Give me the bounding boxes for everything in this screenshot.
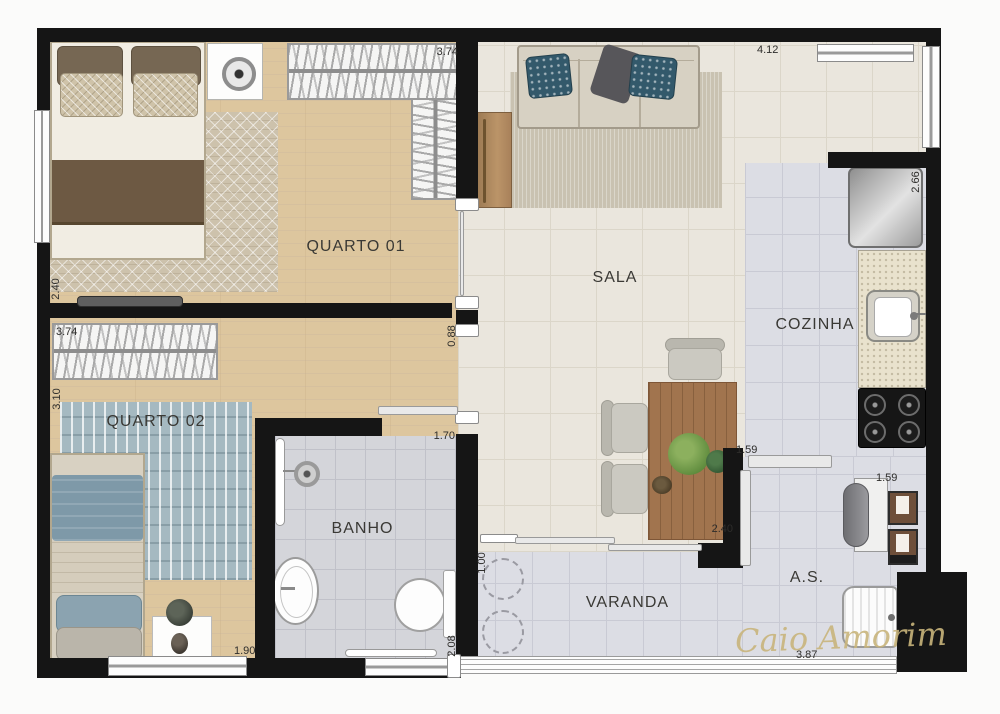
toilet xyxy=(394,578,446,632)
plant-icon xyxy=(668,433,710,475)
cabinet-door xyxy=(896,496,909,514)
blanket-blue xyxy=(52,475,143,541)
sofa-seat-divider xyxy=(578,59,580,127)
room-label-as: A.S. xyxy=(786,569,828,587)
sink-inner xyxy=(280,566,313,618)
window-banho-bottom xyxy=(365,658,458,676)
laundry-cabinet xyxy=(888,491,918,525)
dim-quarto02-bottom: 1.90 xyxy=(234,645,274,657)
as-passage-door xyxy=(748,455,832,468)
pattern-pillow xyxy=(60,73,123,117)
blanket-brown xyxy=(52,160,204,225)
window-quarto02-bottom xyxy=(108,656,247,676)
wall-quarto02-banho xyxy=(255,418,275,660)
as-door-leaf xyxy=(740,470,751,566)
door-jamb xyxy=(455,324,479,337)
room-label-quarto01: QUARTO 01 xyxy=(300,238,412,256)
shower-head-icon xyxy=(294,461,320,487)
dim-cozinha-bottom: 1.59 xyxy=(736,444,776,456)
room-label-quarto02: QUARTO 02 xyxy=(100,413,212,431)
faucet-icon xyxy=(281,587,295,590)
dim-dining-table: 2.40 xyxy=(697,523,733,535)
burner-icon xyxy=(864,394,886,416)
room-label-banho: BANHO xyxy=(325,520,400,538)
dim-banho-bottom-right: 2.08 xyxy=(446,624,458,668)
sideboard-groove xyxy=(483,119,486,203)
sideboard xyxy=(476,112,512,208)
sink-basin xyxy=(874,297,912,337)
chair xyxy=(611,464,648,514)
floor-drain-dashed-circle xyxy=(482,558,524,600)
window-sala-right xyxy=(922,46,940,148)
wall-top xyxy=(37,28,941,42)
washing-machine-drum xyxy=(843,483,869,547)
cabinet-door xyxy=(896,534,909,552)
dim-quarto01-top: 3.74 xyxy=(414,46,458,58)
room-label-sala: SALA xyxy=(580,269,650,287)
floor-drain-dashed-circle xyxy=(482,610,524,654)
wardrobe-quarto01-side xyxy=(411,98,461,200)
tv-panel xyxy=(77,296,183,307)
sofa-pillow-teal-left xyxy=(525,53,573,99)
dim-quarto02-closet: 3.74 xyxy=(56,326,100,338)
wall-banho-right xyxy=(456,434,478,660)
vase-icon xyxy=(171,633,188,654)
plant-icon xyxy=(166,599,193,626)
cabinet-base xyxy=(890,555,916,563)
sofa-pillow-teal-right xyxy=(628,54,678,101)
chair xyxy=(668,348,722,380)
laundry-cabinet xyxy=(888,529,918,565)
nightstand xyxy=(207,43,263,100)
blanket-beige xyxy=(52,541,143,593)
door-jamb xyxy=(455,411,479,424)
shower-glass xyxy=(275,438,285,526)
door-leaf-quarto01 xyxy=(460,211,464,296)
burner-icon xyxy=(898,421,920,443)
window-quarto01 xyxy=(34,110,50,243)
dim-quarto01-left: 2.40 xyxy=(50,267,62,311)
decor-twig-icon xyxy=(652,476,672,494)
door-jamb xyxy=(455,198,479,211)
towel-bar xyxy=(345,649,437,657)
dim-as-top: 1.59 xyxy=(876,472,916,484)
door-jamb xyxy=(455,296,479,309)
double-bed xyxy=(50,41,206,260)
dim-varanda-left: 1.00 xyxy=(476,541,488,585)
window-sala-top xyxy=(817,44,914,62)
dim-sala-top: 4.12 xyxy=(757,44,797,56)
single-bed xyxy=(50,453,145,662)
dim-quarto02-left: 3.10 xyxy=(51,377,63,421)
pattern-pillow xyxy=(133,73,198,117)
room-label-varanda: VARANDA xyxy=(585,594,670,612)
burner-icon xyxy=(898,394,920,416)
dim-cozinha-right: 2.66 xyxy=(910,160,922,204)
floor-plan: QUARTO 01 QUARTO 02 SALA COZINHA BANHO V… xyxy=(0,0,1000,714)
dim-hall-opening: 0.88 xyxy=(446,314,458,358)
wall-cozinha-top xyxy=(828,152,941,168)
bathroom-sink xyxy=(272,557,319,625)
room-label-cozinha: COZINHA xyxy=(770,316,860,334)
burner-icon xyxy=(864,421,886,443)
stove-cooktop xyxy=(858,388,926,448)
wall-dining-nook-h xyxy=(698,543,743,568)
kitchen-sink xyxy=(866,290,920,342)
door-leaf-banho xyxy=(378,406,458,415)
balcony-sliding-door xyxy=(515,537,615,544)
wall-quarto01-sala-upper xyxy=(456,28,478,204)
chair xyxy=(611,403,648,453)
balcony-sliding-door xyxy=(608,544,702,551)
lamp-icon xyxy=(222,57,256,91)
dim-banho-top: 1.70 xyxy=(411,430,455,442)
